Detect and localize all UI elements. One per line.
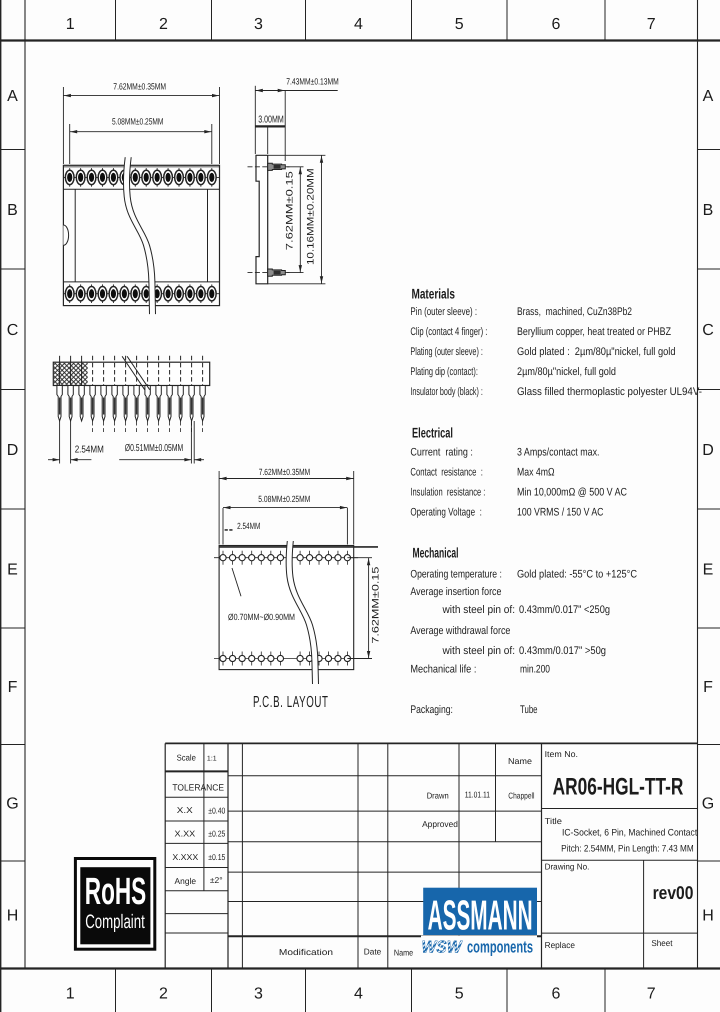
svg-text:Name: Name: [394, 948, 414, 958]
svg-text:4: 4: [354, 16, 363, 33]
svg-text:WSW: WSW: [422, 938, 464, 957]
svg-text:min.200: min.200: [520, 664, 550, 676]
svg-text:Ø0.70MM~Ø0.90MM: Ø0.70MM~Ø0.90MM: [228, 612, 295, 622]
svg-text:4: 4: [354, 985, 363, 1002]
svg-text:Complaint: Complaint: [85, 911, 145, 933]
svg-text:Current rating :: Current rating :: [410, 447, 473, 459]
svg-text:6: 6: [552, 985, 561, 1002]
svg-text:11.01.11: 11.01.11: [465, 790, 490, 800]
svg-text:Modification: Modification: [279, 947, 333, 957]
svg-text:D: D: [7, 442, 19, 459]
svg-text:Mechanical life :: Mechanical life :: [410, 664, 476, 676]
svg-text:2: 2: [159, 985, 168, 1002]
svg-text:3: 3: [254, 985, 263, 1002]
svg-text:G: G: [702, 796, 714, 813]
svg-text:3 Amps/contact max.: 3 Amps/contact max.: [517, 447, 600, 459]
svg-text:F: F: [703, 679, 713, 696]
svg-text:Mechanical: Mechanical: [413, 545, 459, 561]
svg-text:Min 10,000mΩ @ 500 V AC: Min 10,000mΩ @ 500 V AC: [517, 487, 627, 499]
svg-text:1:1: 1:1: [207, 755, 217, 762]
svg-text:H: H: [702, 908, 714, 925]
svg-text:Title: Title: [545, 816, 563, 826]
svg-text:2.54MM: 2.54MM: [237, 521, 260, 531]
svg-text:C: C: [702, 322, 714, 339]
svg-text:±0.25: ±0.25: [208, 829, 225, 839]
svg-text:Clip (contact 4 finger) :: Clip (contact 4 finger) :: [410, 326, 487, 338]
svg-text:C: C: [7, 322, 19, 339]
svg-text:5.08MM±0.25MM: 5.08MM±0.25MM: [258, 494, 310, 504]
svg-text:Angle: Angle: [175, 876, 197, 886]
svg-text:0.43mm/0.017" >50g: 0.43mm/0.017" >50g: [519, 645, 606, 657]
svg-text:±0.40: ±0.40: [208, 806, 225, 816]
svg-text:3.00MM: 3.00MM: [258, 115, 284, 126]
svg-text:Tube: Tube: [520, 704, 538, 716]
svg-text:Insulation resistance :: Insulation resistance :: [410, 487, 485, 499]
svg-text:Plating dip (contact):: Plating dip (contact):: [410, 366, 478, 378]
svg-text:5: 5: [455, 985, 464, 1002]
svg-text:AR06-HGL-TT-R: AR06-HGL-TT-R: [553, 774, 684, 801]
svg-text:Pin (outer sleeve) :: Pin (outer sleeve) :: [410, 306, 477, 318]
svg-text:2: 2: [159, 16, 168, 33]
svg-text:with steel pin of:: with steel pin of:: [442, 645, 515, 657]
svg-text:Name: Name: [508, 756, 532, 766]
svg-text:Approved: Approved: [422, 819, 458, 829]
svg-text:7.62MM±0.15: 7.62MM±0.15: [285, 171, 296, 250]
svg-text:Electrical: Electrical: [412, 425, 453, 441]
svg-text:Drawing No.: Drawing No.: [545, 861, 590, 871]
svg-text:F: F: [8, 679, 18, 696]
svg-text:X.X: X.X: [177, 805, 193, 815]
svg-text:components: components: [467, 938, 533, 957]
svg-text:X.XX: X.XX: [175, 829, 196, 839]
svg-text:5.08MM±0.25MM: 5.08MM±0.25MM: [112, 116, 164, 126]
svg-text:Chappell: Chappell: [508, 791, 534, 801]
svg-text:Ø0.51MM±0.05MM: Ø0.51MM±0.05MM: [125, 443, 183, 454]
svg-text:7.62MM±0.15: 7.62MM±0.15: [370, 567, 381, 644]
svg-text:Sheet: Sheet: [651, 938, 673, 948]
svg-text:rev00: rev00: [653, 882, 694, 903]
svg-text:7.43MM±0.13MM: 7.43MM±0.13MM: [286, 77, 338, 87]
svg-text:Drawn: Drawn: [427, 791, 449, 801]
svg-text:with steel pin of:: with steel pin of:: [442, 604, 515, 616]
svg-text:IC-Socket, 6 Pin, Machined Con: IC-Socket, 6 Pin, Machined Contact: [562, 827, 698, 838]
svg-text:7: 7: [647, 985, 656, 1002]
svg-text:0.43mm/0.017" <250g: 0.43mm/0.017" <250g: [519, 604, 610, 616]
svg-text:3: 3: [254, 16, 263, 33]
svg-text:±0.15: ±0.15: [208, 852, 225, 862]
svg-text:7.62MM±0.35MM: 7.62MM±0.35MM: [259, 467, 310, 477]
svg-text:1: 1: [66, 16, 75, 33]
svg-text:Replace: Replace: [545, 940, 576, 950]
svg-text:Average insertion force: Average insertion force: [410, 586, 501, 598]
svg-text:P.C.B. LAYOUT: P.C.B. LAYOUT: [253, 694, 329, 711]
svg-text:Item No.: Item No.: [545, 749, 578, 759]
svg-text:10.16MM±0.20MM: 10.16MM±0.20MM: [305, 168, 316, 265]
svg-text:7.62MM±0.35MM: 7.62MM±0.35MM: [113, 81, 166, 91]
svg-text:Brass, machined, CuZn38Pb2: Brass, machined, CuZn38Pb2: [517, 306, 632, 318]
svg-text:1: 1: [66, 985, 75, 1002]
svg-text:X.XXX: X.XXX: [172, 852, 198, 862]
svg-text:D: D: [702, 442, 714, 459]
svg-text:±2°: ±2°: [210, 875, 223, 885]
svg-text:Scale: Scale: [177, 753, 197, 763]
svg-text:Date: Date: [364, 947, 382, 957]
svg-text:Gold plated : 2µm/80µ"nickel,: Gold plated : 2µm/80µ"nickel, full gold: [517, 346, 676, 358]
svg-text:Glass filled thermoplastic pol: Glass filled thermoplastic polyester UL9…: [517, 386, 702, 398]
svg-text:Operating Voltage :: Operating Voltage :: [410, 507, 482, 519]
svg-text:A: A: [703, 88, 714, 105]
svg-text:Materials: Materials: [412, 285, 456, 301]
svg-text:B: B: [7, 202, 18, 219]
svg-text:Gold plated: -55°C to +125°C: Gold plated: -55°C to +125°C: [517, 569, 637, 581]
svg-text:100 VRMS / 150 V AC: 100 VRMS / 150 V AC: [517, 507, 604, 519]
svg-text:Insulator body (black) :: Insulator body (black) :: [410, 386, 483, 398]
svg-text:Contact resistance :: Contact resistance :: [410, 467, 483, 479]
svg-text:RoHS: RoHS: [85, 871, 147, 913]
svg-text:Pitch: 2.54MM, Pin Length: 7.4: Pitch: 2.54MM, Pin Length: 7.43 MM: [561, 843, 694, 854]
svg-text:H: H: [7, 908, 19, 925]
svg-text:ASSMANN: ASSMANN: [428, 892, 533, 939]
svg-text:5: 5: [455, 16, 464, 33]
svg-text:E: E: [7, 561, 18, 578]
svg-text:B: B: [703, 202, 714, 219]
svg-text:Operating temperature :: Operating temperature :: [410, 569, 502, 581]
svg-text:2µm/80µ"nickel, full gold: 2µm/80µ"nickel, full gold: [517, 366, 616, 378]
svg-text:Average withdrawal force: Average withdrawal force: [410, 625, 510, 637]
svg-text:Max 4mΩ: Max 4mΩ: [517, 467, 555, 479]
svg-text:TOLERANCE: TOLERANCE: [172, 782, 224, 792]
svg-text:G: G: [6, 796, 18, 813]
svg-text:Beryllium copper, heat treated: Beryllium copper, heat treated or PHBZ: [517, 326, 671, 338]
svg-text:7: 7: [647, 16, 656, 33]
svg-text:Packaging:: Packaging:: [410, 704, 453, 716]
svg-text:Plating (outer sleeve) :: Plating (outer sleeve) :: [410, 346, 483, 358]
svg-text:A: A: [7, 88, 18, 105]
svg-text:E: E: [703, 561, 714, 578]
svg-text:2.54MM: 2.54MM: [75, 444, 104, 455]
svg-text:6: 6: [552, 16, 561, 33]
